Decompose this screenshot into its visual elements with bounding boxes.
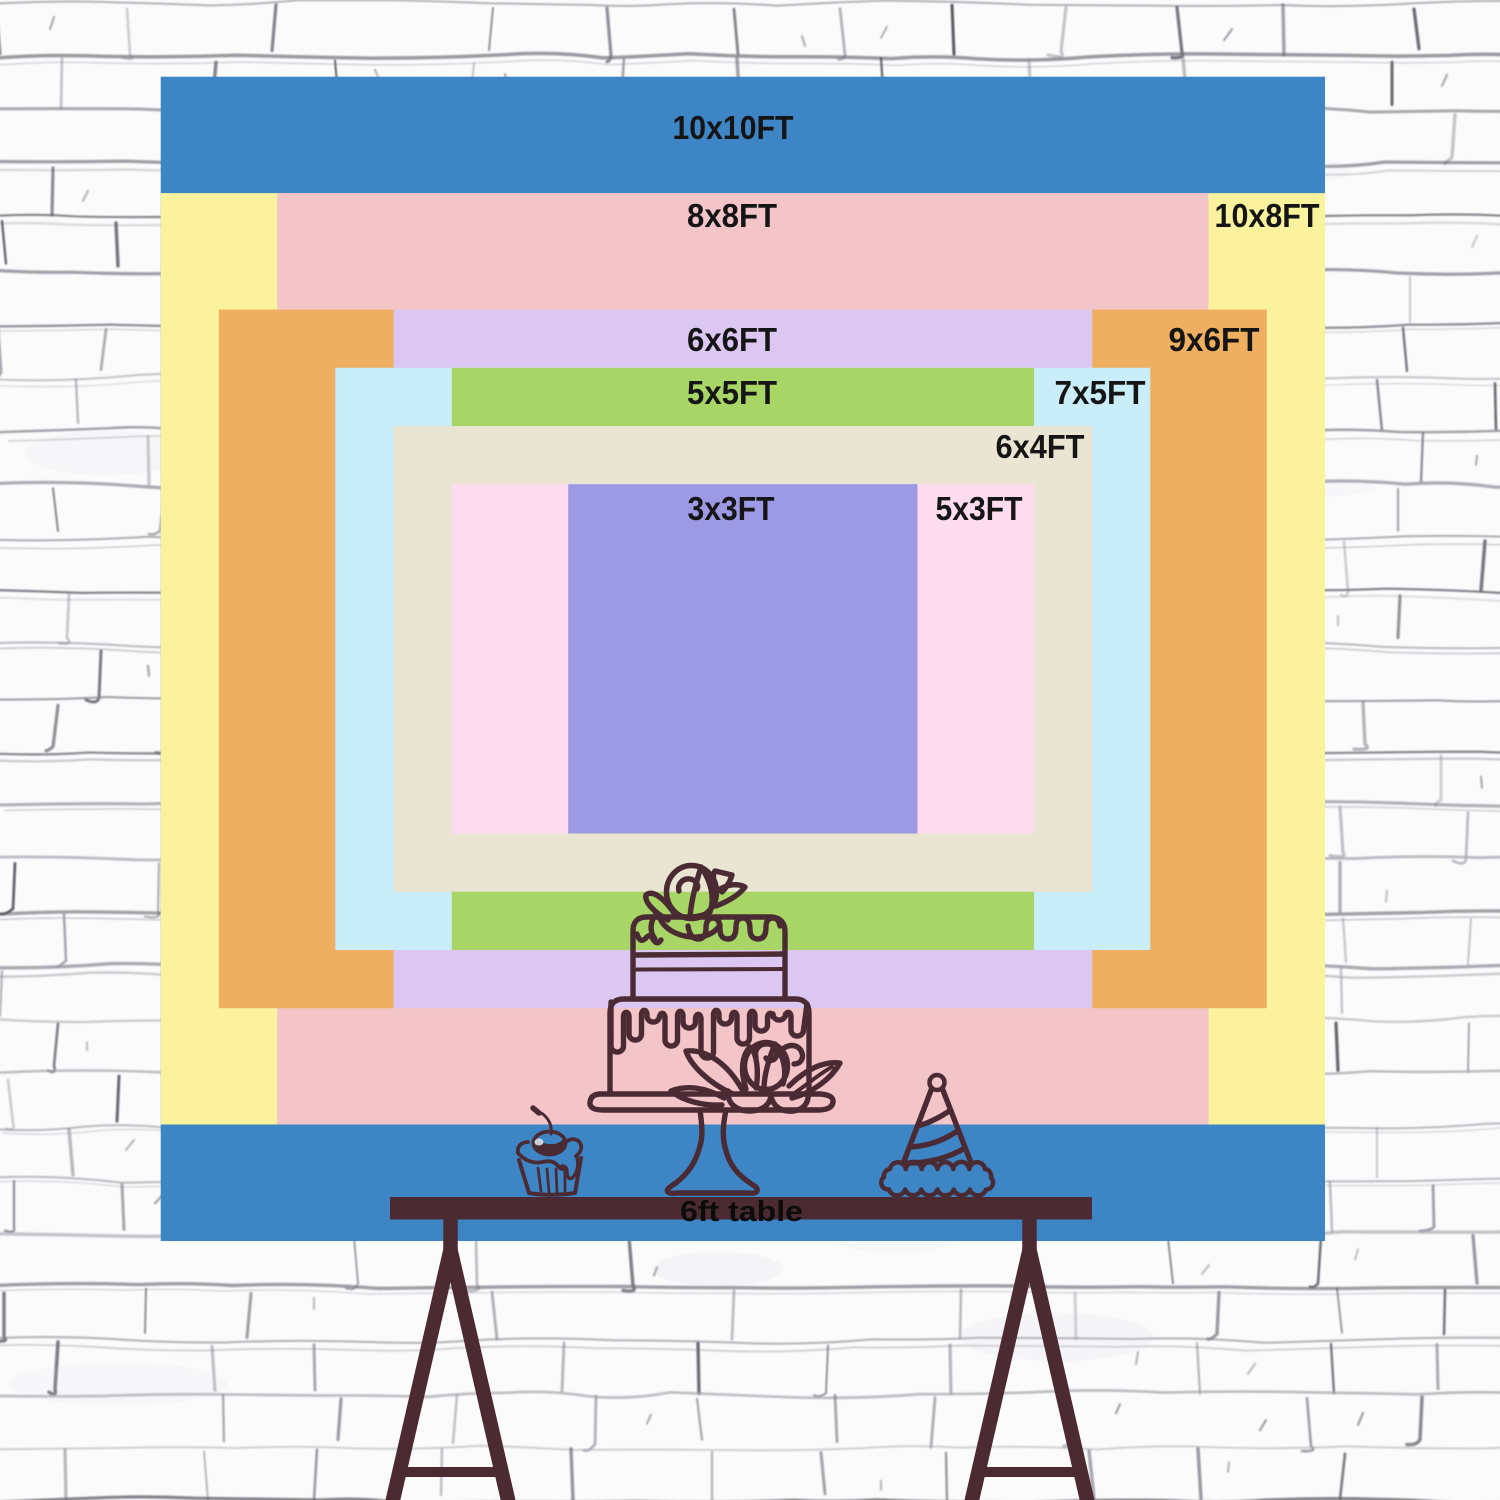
svg-text:5x5FT: 5x5FT — [687, 375, 777, 412]
svg-text:9x6FT: 9x6FT — [1169, 322, 1260, 359]
svg-text:10x10FT: 10x10FT — [673, 110, 794, 147]
svg-text:6ft table: 6ft table — [680, 1196, 803, 1228]
svg-text:5x3FT: 5x3FT — [936, 491, 1023, 528]
svg-text:3x3FT: 3x3FT — [688, 491, 775, 528]
svg-text:10x8FT: 10x8FT — [1215, 198, 1320, 235]
svg-text:6x4FT: 6x4FT — [996, 429, 1085, 466]
svg-text:8x8FT: 8x8FT — [687, 198, 777, 235]
svg-text:7x5FT: 7x5FT — [1055, 375, 1146, 412]
svg-text:6x6FT: 6x6FT — [687, 322, 777, 359]
